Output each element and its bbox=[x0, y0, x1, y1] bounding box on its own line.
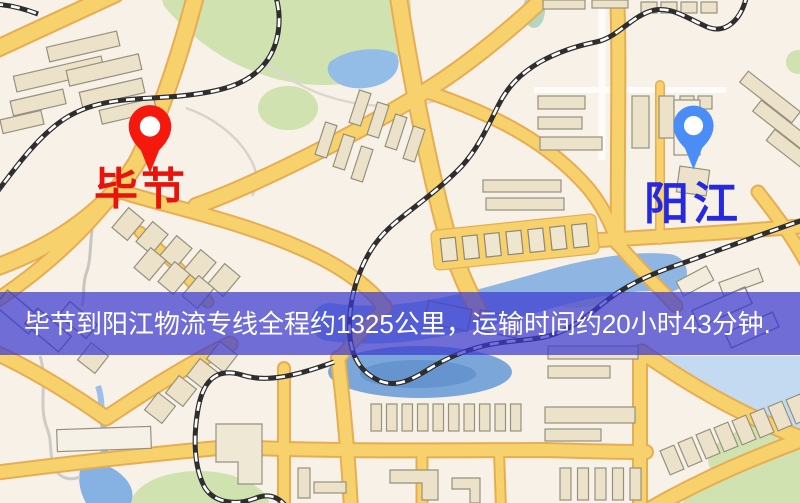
destination-pin-icon bbox=[666, 101, 721, 174]
map-background bbox=[0, 0, 800, 503]
route-info-banner: 毕节到阳江物流专线全程约1325公里，运输时间约20小时43分钟. bbox=[0, 292, 800, 355]
logistics-map: 毕节到阳江物流专线全程约1325公里，运输时间约20小时43分钟. 毕节 阳江 bbox=[0, 0, 800, 503]
destination-city-label: 阳江 bbox=[644, 181, 742, 226]
origin-city-label: 毕节 bbox=[94, 168, 188, 212]
route-info-text: 毕节到阳江物流专线全程约1325公里，运输时间约20小时43分钟. bbox=[24, 311, 771, 337]
